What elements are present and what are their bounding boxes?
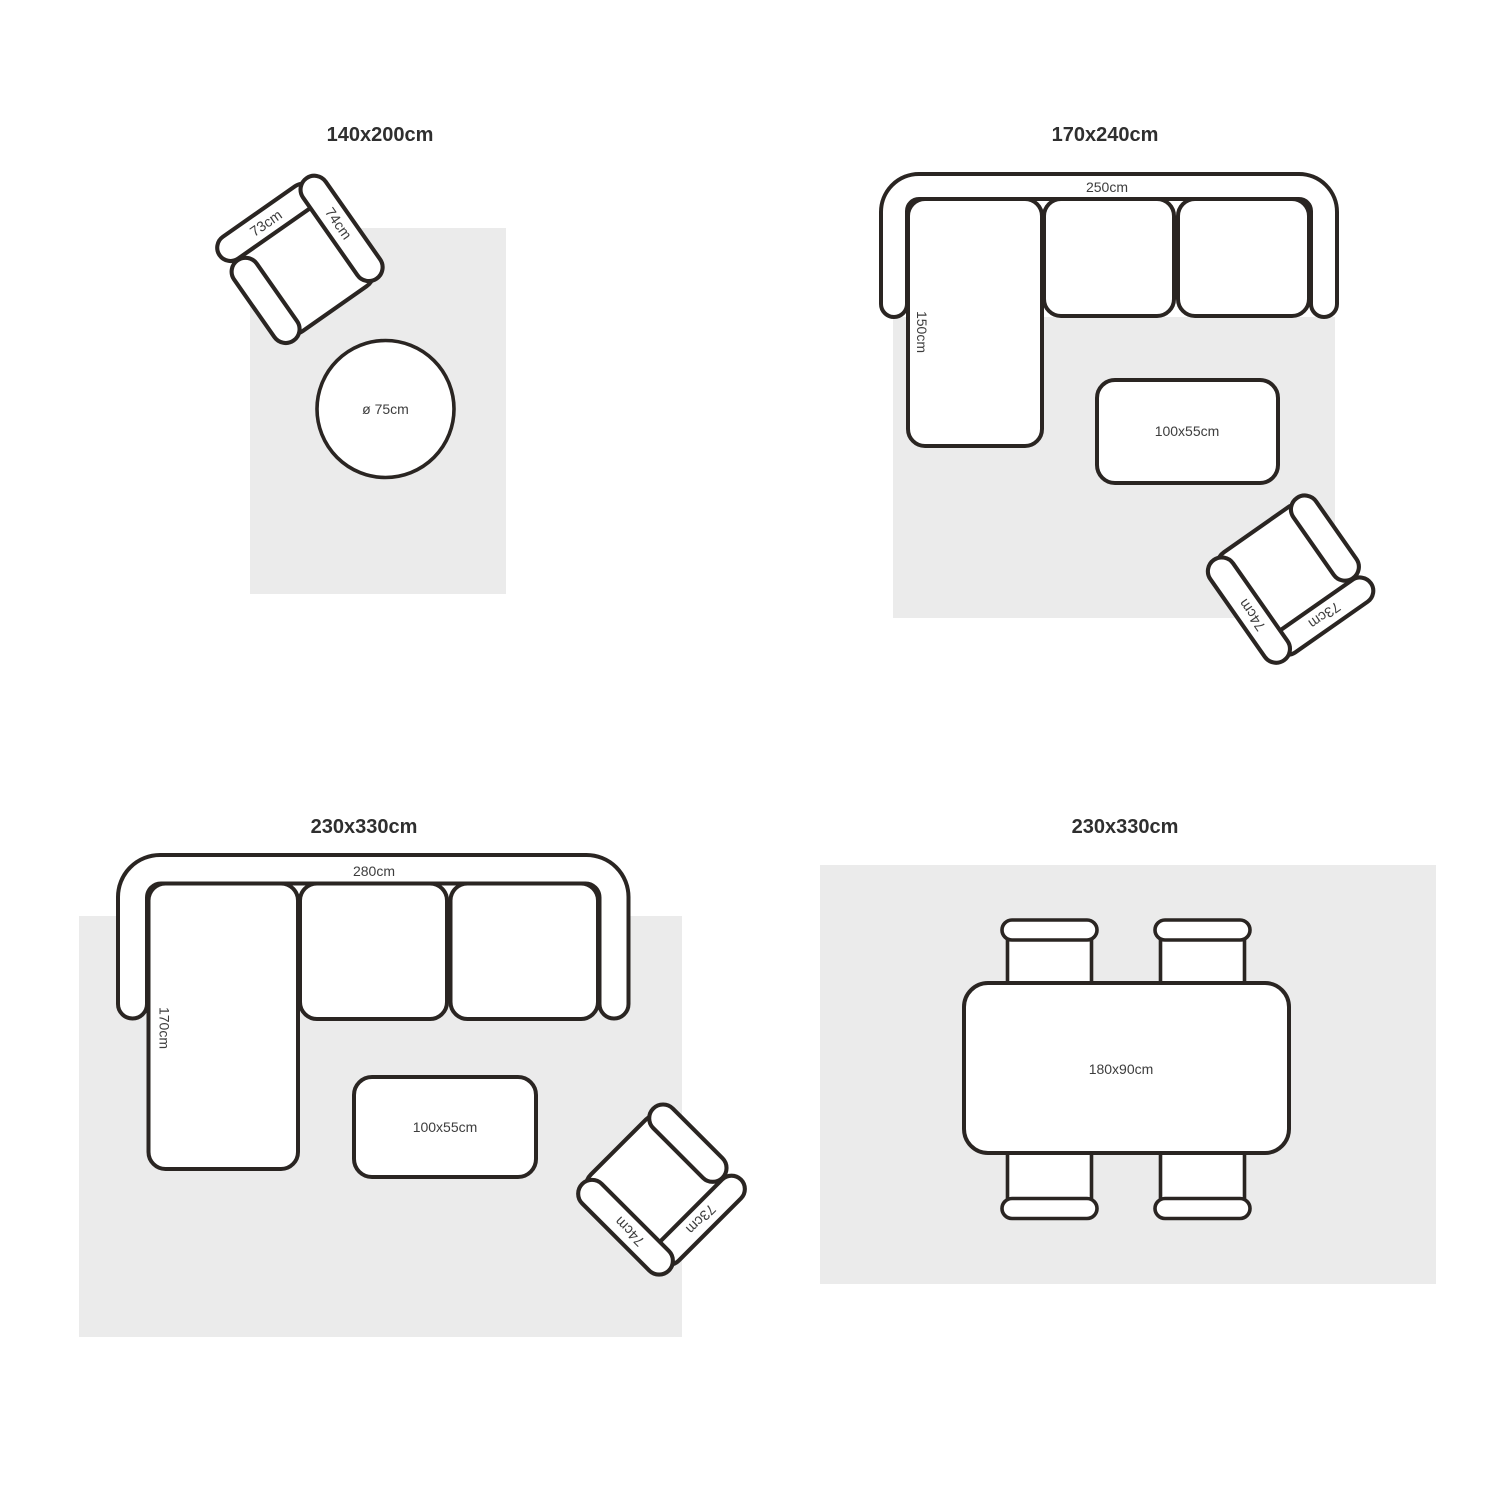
svg-text:100x55cm: 100x55cm	[413, 1119, 478, 1135]
svg-text:100x55cm: 100x55cm	[1155, 423, 1220, 439]
svg-text:170x240cm: 170x240cm	[1052, 124, 1159, 146]
svg-text:170cm: 170cm	[157, 1007, 173, 1049]
svg-text:ø 75cm: ø 75cm	[362, 401, 409, 417]
svg-text:280cm: 280cm	[353, 863, 395, 879]
svg-text:230x330cm: 230x330cm	[1072, 816, 1179, 838]
svg-text:180x90cm: 180x90cm	[1089, 1061, 1154, 1077]
svg-text:150cm: 150cm	[914, 311, 930, 353]
svg-text:230x330cm: 230x330cm	[311, 816, 418, 838]
svg-text:140x200cm: 140x200cm	[327, 124, 434, 146]
svg-text:250cm: 250cm	[1086, 179, 1128, 195]
